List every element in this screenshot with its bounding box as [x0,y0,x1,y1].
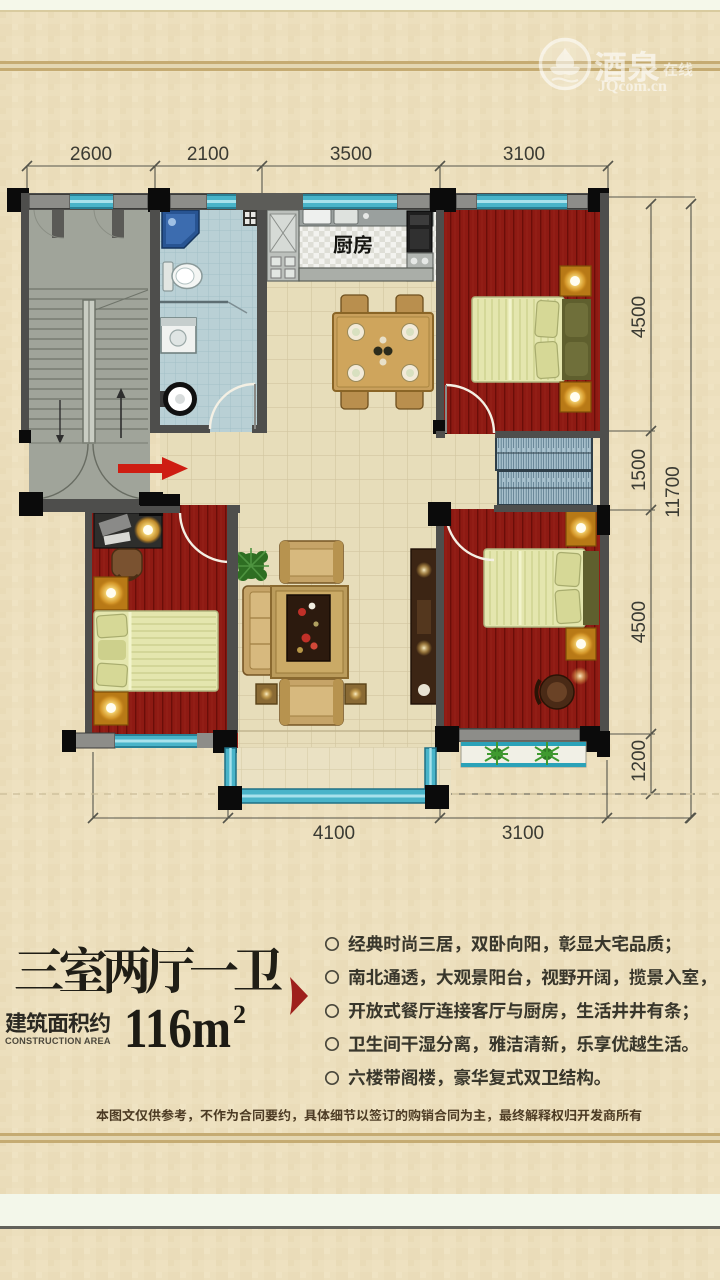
svg-text:2600: 2600 [70,144,112,165]
svg-text:1200: 1200 [629,740,650,782]
svg-text:11700: 11700 [663,466,684,517]
svg-text:2100: 2100 [187,144,229,165]
svg-text:JQcom.cn: JQcom.cn [598,78,667,95]
svg-text:2: 2 [233,1000,246,1029]
svg-text:116m: 116m [124,998,231,1060]
svg-text:CONSTRUCTION AREA: CONSTRUCTION AREA [5,1036,111,1046]
svg-text:4100: 4100 [313,823,355,844]
svg-text:3100: 3100 [503,144,545,165]
svg-text:1500: 1500 [629,449,650,491]
svg-text:4500: 4500 [629,296,650,338]
svg-text:3100: 3100 [502,823,544,844]
svg-text:4500: 4500 [629,601,650,643]
svg-text:3500: 3500 [330,144,372,165]
